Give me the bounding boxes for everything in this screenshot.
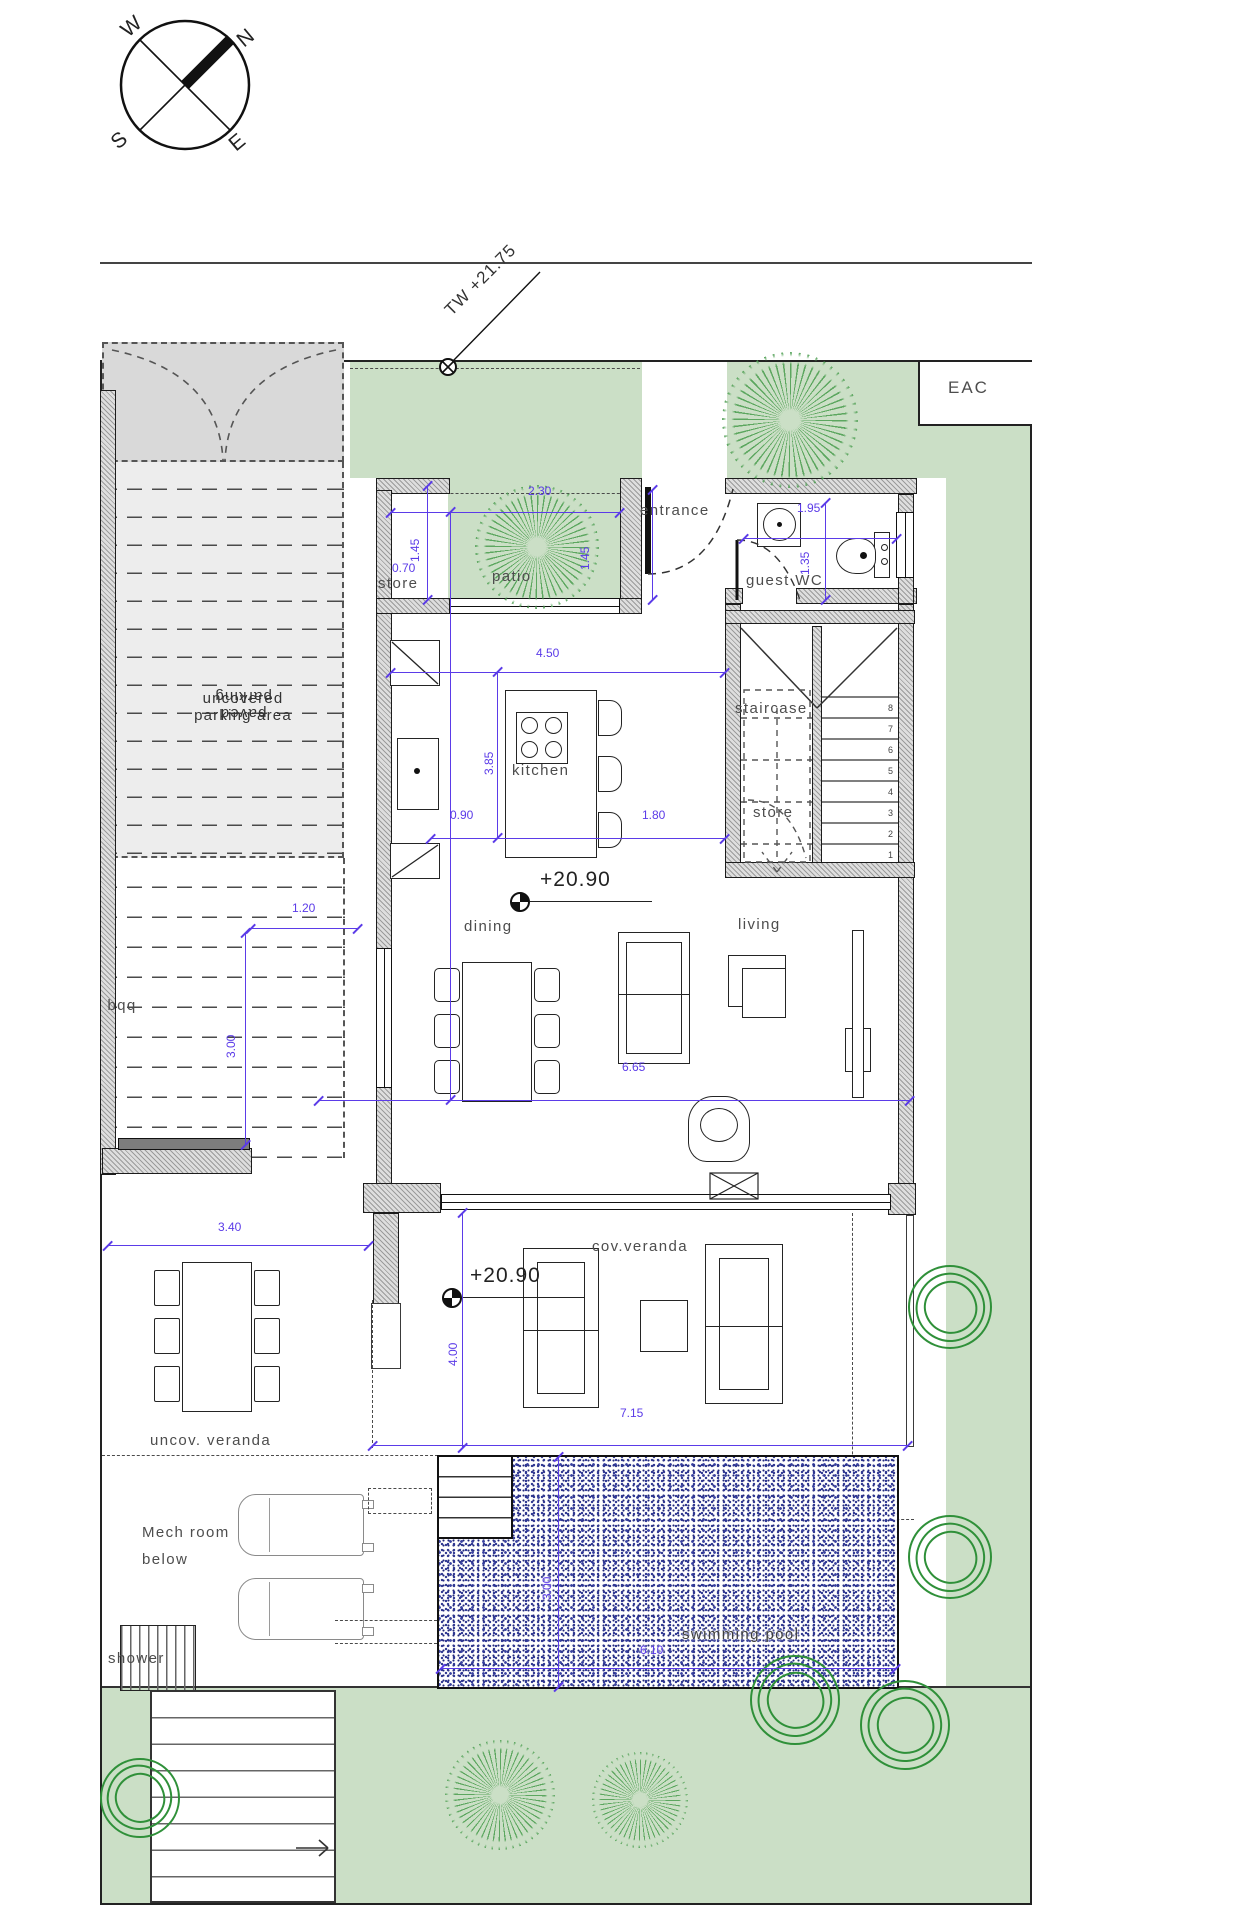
window-guest-wc [896,512,914,578]
lounger-wheel [362,1543,374,1552]
corner-cabinet [390,843,440,879]
entry-path [642,362,727,480]
dim-patio-width: 2.30 [528,484,551,498]
toilet-flush [860,552,867,559]
dashed-line [335,1620,437,1621]
room-label-mech-1: Mech room [142,1524,230,1541]
pool-steps [439,1457,513,1539]
wall [618,598,642,614]
parking-label-flipped: paved parking [148,688,338,722]
kitchen-counter [397,738,439,810]
compass-e: E [224,129,250,156]
tree-scribble [908,1515,992,1599]
dim-line [372,1445,908,1446]
wall-stair-spine [812,626,822,864]
dim-line [440,1668,896,1669]
veranda-right-wall [906,1215,914,1447]
tw-level-label: TW +21.75 [441,240,521,320]
eac-label: EAC [948,378,989,398]
dim-line [318,1100,910,1101]
room-label-store: store [378,575,418,592]
parking-label-flip1: paved [148,705,338,722]
veranda-armchair-seam [523,1330,599,1331]
pool-label: swimming pool [682,1626,799,1643]
dashed-box [368,1488,432,1514]
bbq-label: bbq [106,998,135,1015]
column [371,1303,401,1369]
dim-bbq-depth: 3.00 [224,1035,238,1058]
dim-island-clear: 1.80 [642,808,665,822]
level-marker-line [530,901,652,902]
room-label-shower: shower [108,1650,165,1667]
lounger-wheel [362,1627,374,1636]
tree-scribble [100,1758,180,1838]
dashed-line [372,1300,373,1448]
burner [521,741,538,758]
dim-line [462,1213,463,1448]
dim-living-width: 6.65 [622,1060,645,1074]
dim-line [107,1245,369,1246]
dim-line [497,672,498,838]
sofa-seam [618,994,690,995]
dashed-line [335,1643,437,1644]
wall-plot-left [100,390,116,1175]
dashed-line [102,1455,438,1456]
outdoor-chair [154,1270,180,1306]
dining-chair [434,968,460,1002]
bar-stool [598,700,622,736]
outdoor-table [182,1262,252,1412]
sun-lounger [238,1494,364,1556]
burner [521,717,538,734]
garden-right [946,362,1030,1903]
room-label-mech-2: below [142,1551,188,1568]
dim-line [652,490,653,600]
toilet-bowl [836,538,876,574]
room-label-living: living [738,916,781,933]
dim-line [743,538,897,539]
room-label-stair-store: store [753,804,793,821]
dim-line [427,486,428,600]
dim-store-depth: 1.45 [408,539,422,562]
compass-rose [121,21,249,149]
dim-veranda-width: 7.15 [620,1406,643,1420]
window-dining [376,948,392,1088]
veranda-armchair-seam [705,1326,783,1327]
lounge-chair-seat [700,1108,738,1142]
lounger-wheel [362,1584,374,1593]
armchair-cushion [742,968,786,1018]
dim-line [450,512,451,1100]
wall-bbq-bottom [102,1148,252,1174]
bar-stool [598,812,622,848]
level-value-main: +20.90 [540,868,611,892]
dim-patio-depth: 1.45 [578,547,592,570]
room-label-staircase: staircase [735,700,808,717]
tree-burst [592,1752,688,1848]
dim-line [825,503,826,600]
wall [620,478,642,602]
dim-veranda-depth: 4.00 [446,1343,460,1366]
outdoor-chair [254,1366,280,1402]
level-marker-line [462,1297,584,1298]
fixture-knob [881,544,888,551]
dim-pool-depth: 3.00 [540,1577,554,1600]
burner [545,717,562,734]
level-value-veranda: +20.90 [470,1264,541,1288]
dim-line [390,672,725,673]
wall [888,1183,916,1215]
sink-drain [414,768,420,774]
bbq-counter [118,1138,250,1150]
dining-chair [534,1014,560,1048]
wall [725,862,915,878]
room-label-kitchen: kitchen [512,762,569,779]
tree-burst [722,352,858,488]
basin-drain [777,522,782,527]
wall [376,598,450,614]
dim-line [245,933,246,1145]
level-marker [510,892,530,912]
veranda-armchair-cushion [537,1262,585,1394]
dim-kitchen-width: 4.50 [536,646,559,660]
top-strip-dashed-line [350,368,640,369]
sun-lounger [238,1578,364,1640]
floor-plan: EAC bbq uncovered parking area paved par… [0,0,1244,1930]
room-label-entrance: entrance [640,502,710,519]
room-label-dining: dining [464,918,512,935]
parking-area [102,462,344,858]
corner-cabinet [390,640,440,686]
tree-burst [445,1740,555,1850]
compass-n: N [232,24,258,51]
sofa-cushion [626,942,682,1054]
room-label-patio: patio [492,568,532,585]
dim-bbq-offset: 1.20 [292,901,315,915]
dim-line [390,512,620,513]
dim-wc-width: 1.95 [797,501,820,515]
outdoor-chair [154,1318,180,1354]
dining-chair [434,1014,460,1048]
dim-wc-depth: 1.35 [798,552,812,575]
dining-chair [534,1060,560,1094]
compass-w: W [116,11,146,41]
dim-pool-width: 6.10 [640,1643,663,1657]
dim-uncov-veranda-width: 3.40 [218,1220,241,1234]
dim-line [430,838,725,839]
site-boundary-top-line [100,262,1032,264]
tree-scribble [908,1265,992,1349]
dining-table [462,962,532,1102]
dining-chair [434,1060,460,1094]
burner [545,741,562,758]
tv-console [852,930,864,1098]
wall [725,610,915,624]
dim-line [558,1457,559,1687]
coffee-table [640,1300,688,1352]
wall [373,1213,399,1305]
dining-chair [534,968,560,1002]
tree-scribble [860,1680,950,1770]
room-label-cov-veranda: cov.veranda [592,1238,688,1255]
dim-line [250,928,358,929]
fixture-knob [881,558,888,565]
veranda-armchair-cushion [719,1258,769,1390]
parking-label-flip2: parking [148,688,338,705]
outdoor-chair [254,1270,280,1306]
compass-s: S [106,127,132,154]
dim-store-width: 0.70 [392,561,415,575]
pergola-canopy [102,342,344,462]
bar-stool [598,756,622,792]
outdoor-chair [254,1318,280,1354]
wall [898,604,914,1214]
wall [363,1183,441,1213]
room-label-uncov-veranda: uncov. veranda [150,1432,271,1449]
dim-kitchen-depth: 3.85 [482,752,496,775]
outdoor-chair [154,1366,180,1402]
level-marker [442,1288,462,1308]
sliding-window-living [441,1194,891,1210]
wall [725,588,743,604]
dim-island-offset: 0.90 [450,808,473,822]
